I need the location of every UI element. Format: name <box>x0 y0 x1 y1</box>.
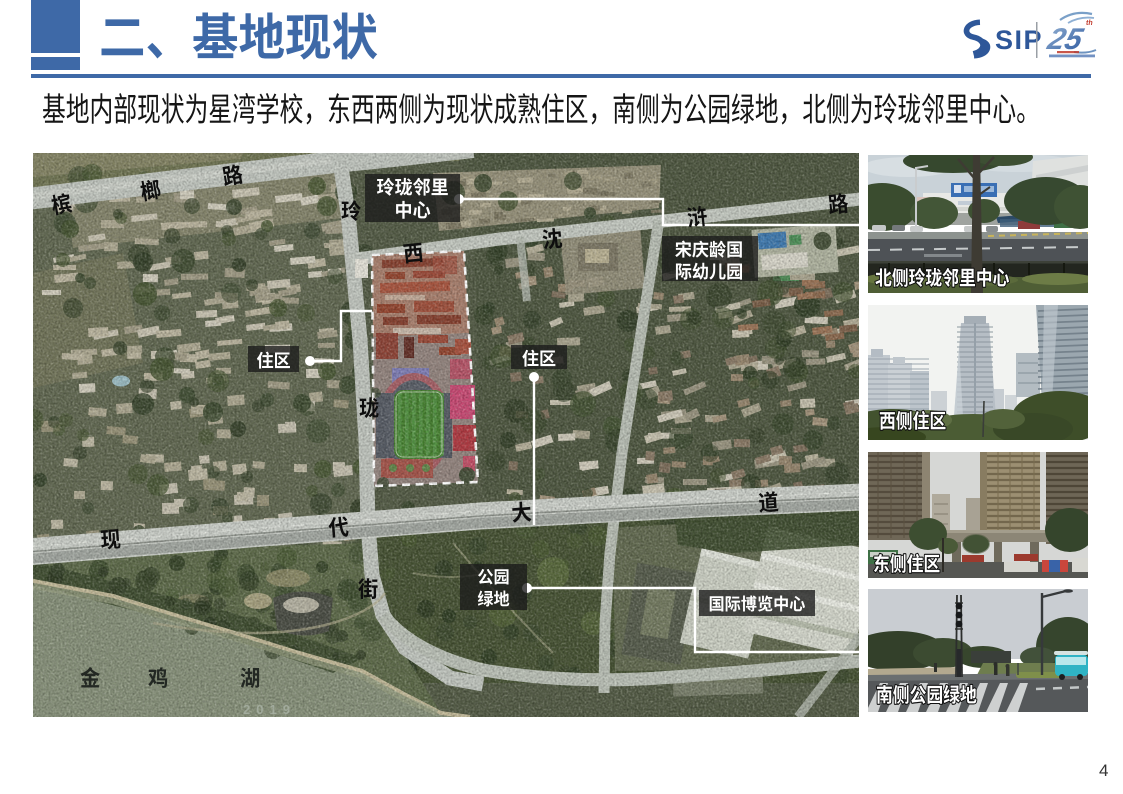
svg-text:th: th <box>1086 20 1093 27</box>
svg-text:SIP: SIP <box>995 25 1043 55</box>
svg-text:25: 25 <box>1044 22 1088 55</box>
svg-text:2019: 2019 <box>243 702 296 717</box>
